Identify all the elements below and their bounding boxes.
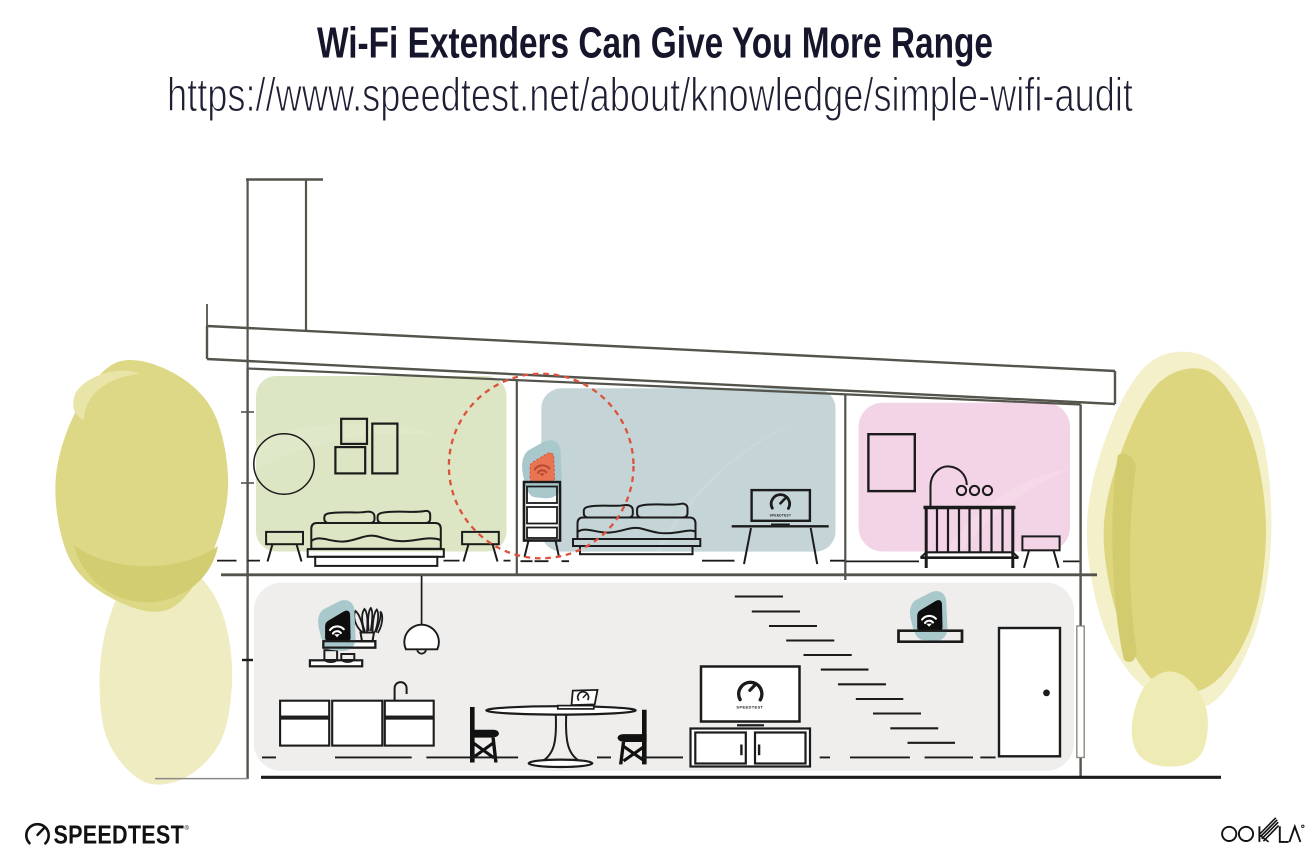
svg-text:Wi-Fi Extenders Can Give You M: Wi-Fi Extenders Can Give You More Range [317, 19, 993, 68]
svg-text:SPEEDTEST: SPEEDTEST [770, 514, 792, 518]
svg-text:https://www.speedtest.net/abou: https://www.speedtest.net/about/knowledg… [167, 68, 1133, 121]
svg-text:SPEEDTEST: SPEEDTEST [736, 704, 763, 709]
svg-text:®: ® [185, 825, 190, 832]
svg-text:SPEEDTEST: SPEEDTEST [54, 822, 185, 850]
